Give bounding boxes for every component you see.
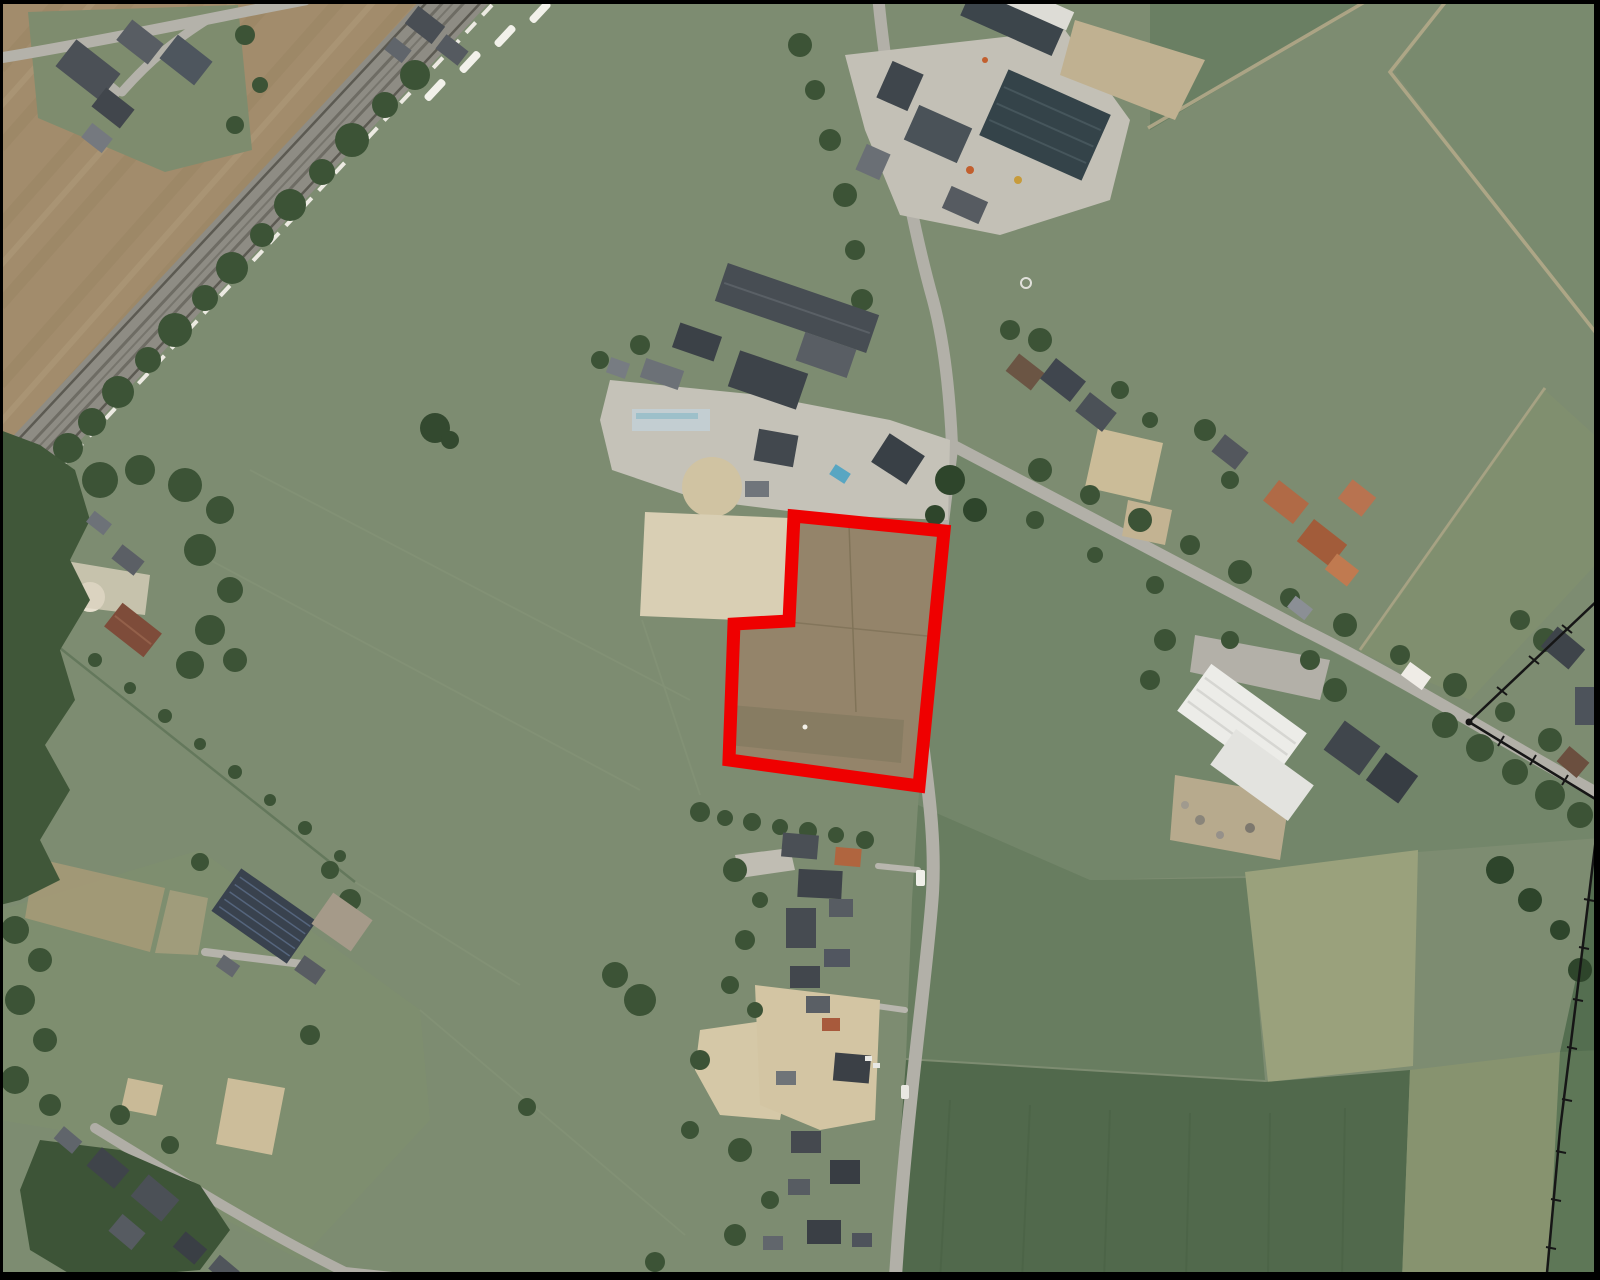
house (824, 949, 850, 967)
van (901, 1085, 909, 1099)
car (916, 870, 925, 886)
shed (788, 1179, 810, 1195)
round-pad (682, 457, 742, 517)
house (786, 908, 816, 948)
manege-sand (640, 512, 790, 622)
orange-shed (822, 1018, 840, 1031)
house (807, 1220, 841, 1244)
boundary-vertex (1466, 719, 1473, 726)
shed (745, 481, 769, 497)
pool-lane (632, 409, 710, 431)
house (790, 966, 820, 988)
house (791, 1131, 821, 1153)
house (797, 869, 842, 899)
house (830, 1160, 860, 1184)
house (806, 996, 830, 1013)
shed (763, 1236, 783, 1250)
shed (776, 1071, 796, 1085)
shed (852, 1233, 872, 1247)
aerial-map (0, 0, 1600, 1280)
house (781, 832, 819, 859)
shed (829, 899, 853, 917)
orange-roof-house (834, 847, 861, 867)
house (754, 429, 799, 467)
